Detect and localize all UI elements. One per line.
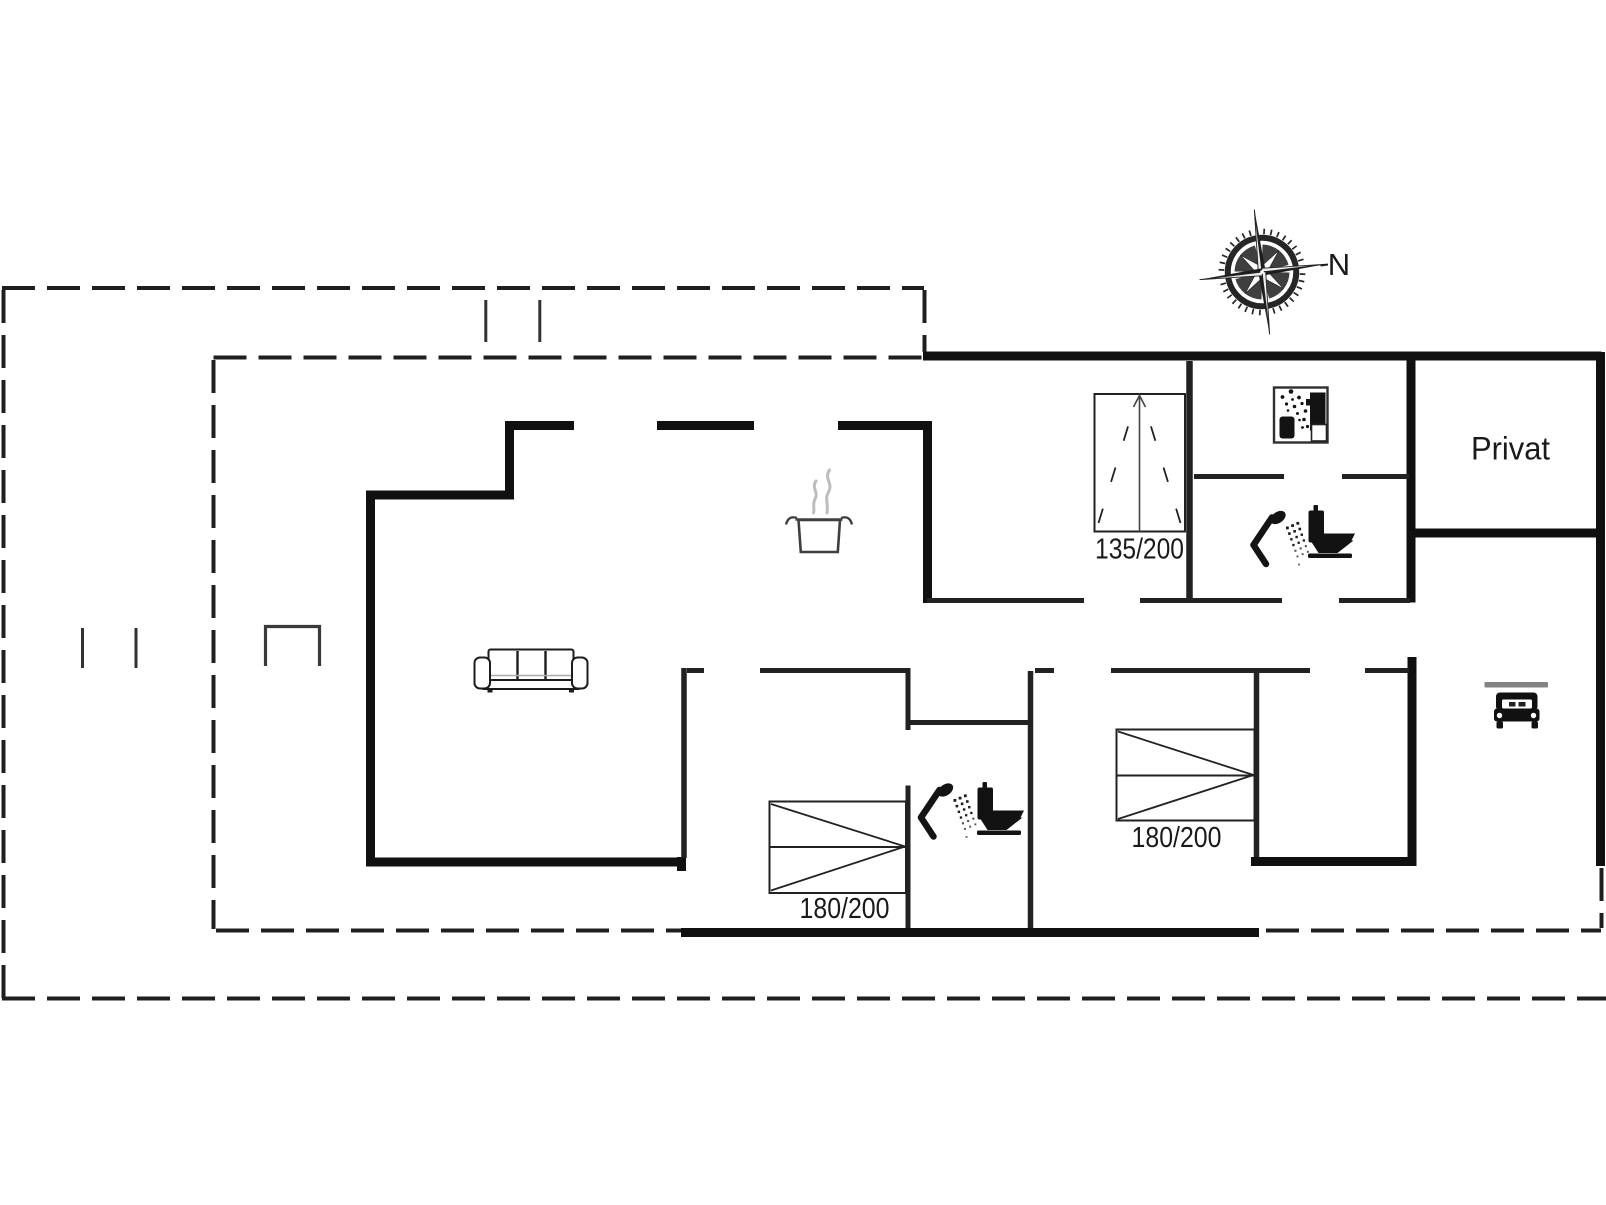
- svg-text:180/200: 180/200: [800, 893, 890, 925]
- svg-text:180/200: 180/200: [1132, 822, 1222, 854]
- svg-text:135/200: 135/200: [1095, 534, 1184, 566]
- svg-text:Privat: Privat: [1471, 431, 1550, 467]
- svg-text:N: N: [1328, 247, 1350, 282]
